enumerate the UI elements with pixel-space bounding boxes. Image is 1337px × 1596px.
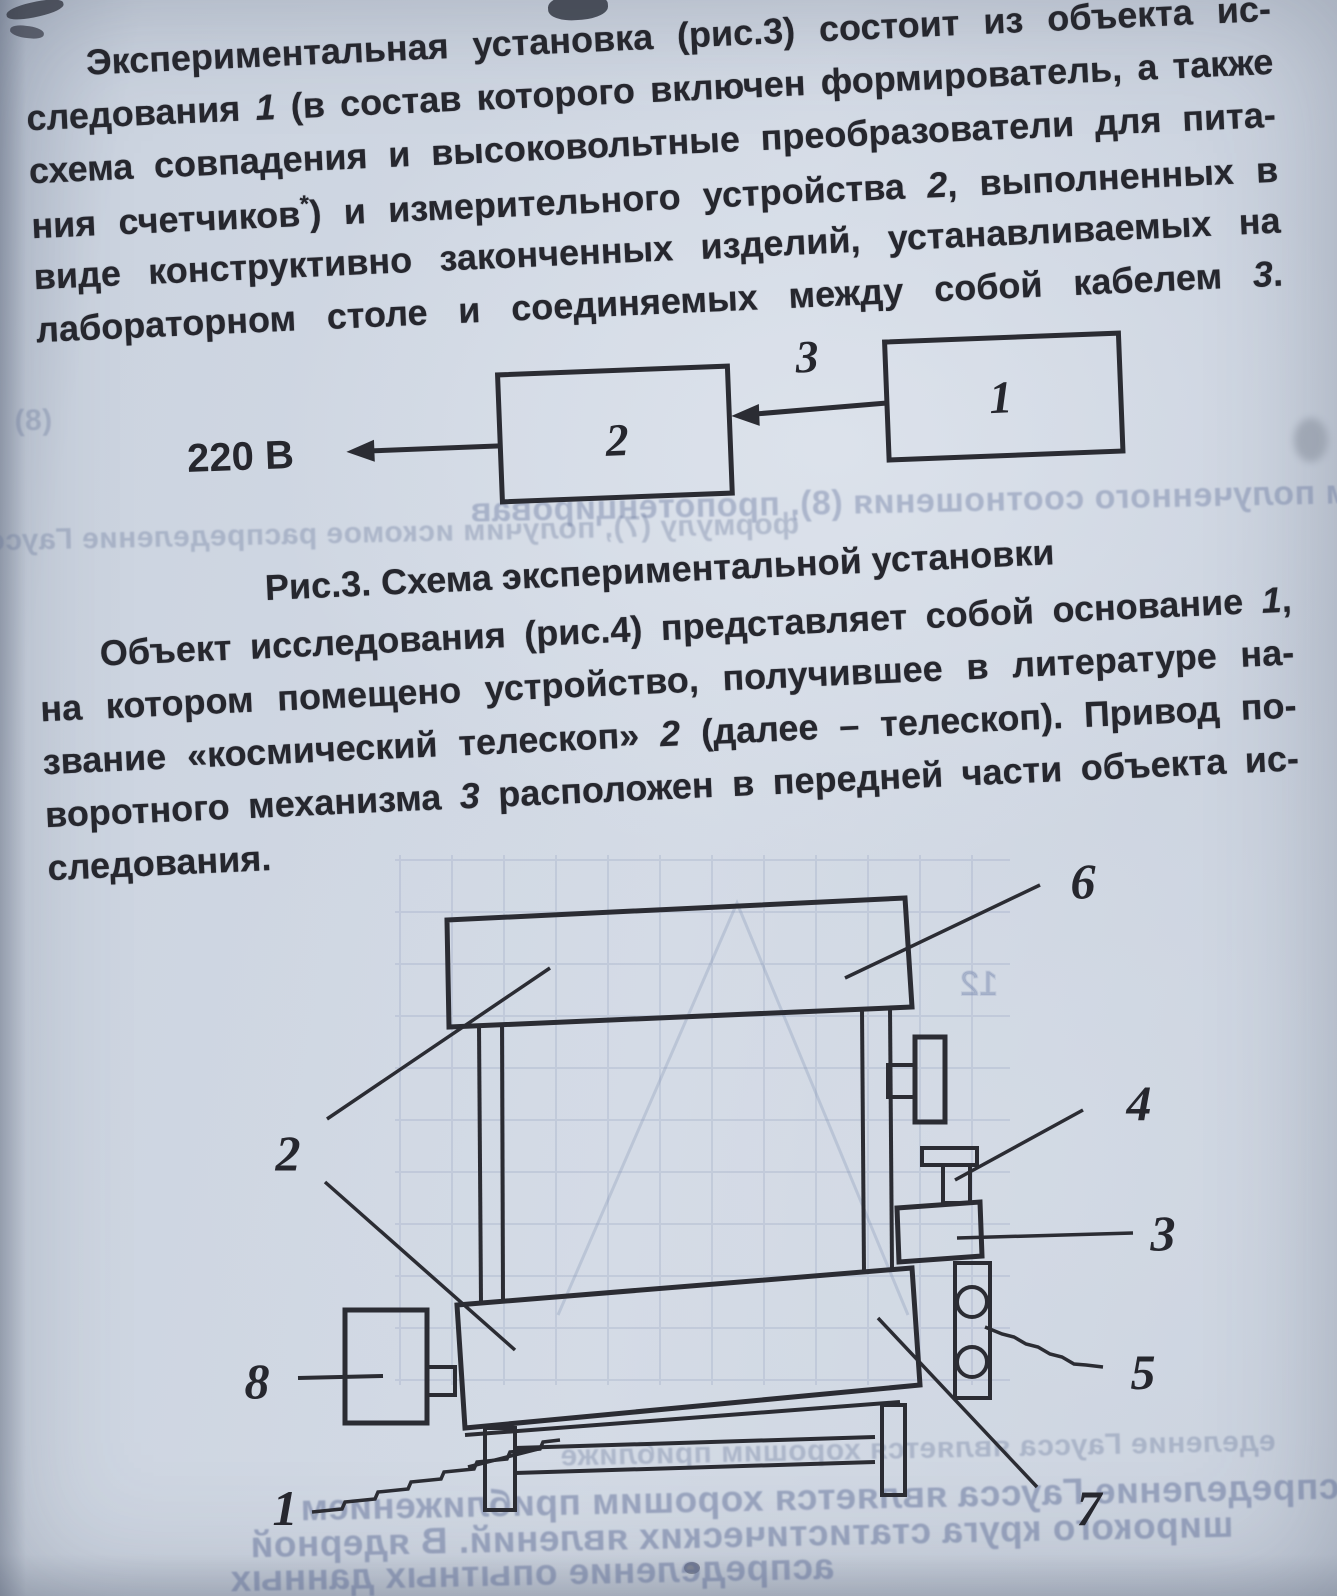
fig4-leader-8 [298,1376,383,1378]
bleed-digit: 12 [960,965,998,1003]
fig4-label-4: 4 [1126,1075,1152,1131]
fig4-drive-housing [345,1310,427,1423]
fig3-cable-number: 3 [794,331,820,383]
fig4-leader-7 [878,1318,1037,1487]
fig3-cable-arrowhead [731,404,760,427]
fig4-label-7: 7 [1077,1480,1104,1536]
scanned-page: (8) Тогда с учетом полученного соотношен… [0,0,1337,1596]
fig4-left-post [479,1024,503,1303]
fig4-telescope-plate [447,898,912,1027]
fig4-label-8: 8 [245,1353,270,1409]
fig4-left-leg [485,1428,515,1510]
fig4-right-leg [882,1405,905,1495]
item-number: 2 [659,712,681,754]
item-number: 1 [1261,579,1283,621]
item-number: 2 [926,164,948,206]
fig3-mains-line [370,446,500,451]
fig4-drive-block [897,1202,982,1262]
fig4-drawing: 12 [0,845,1337,1596]
fig4-base-shelf-bottom [515,1462,875,1473]
text-run: . [1272,253,1284,294]
fig4-leader-1-tick [468,1449,538,1467]
item-number: 1 [254,86,276,128]
fig3-block2-number: 2 [604,414,630,466]
fig3-block1-number: 1 [988,371,1013,423]
fig4-leader-5 [985,1327,1103,1367]
fig4-leader-2-upper [327,968,550,1119]
fig3-cable-line [753,403,887,414]
fig4-base-shelf-top [515,1437,875,1448]
fig4-label-1: 1 [273,1480,298,1536]
fig4-label-3: 3 [1150,1205,1176,1261]
item-number: 3 [1252,253,1274,295]
fig3-mains-arrowhead [346,440,375,463]
item-number: 3 [459,775,481,817]
text-run: , [1281,579,1293,620]
fig4-leader-1 [312,1440,560,1512]
text-run: ния счетчиков [30,193,301,246]
fig4-label-6: 6 [1071,853,1096,909]
fig4-leader-2-lower [325,1182,515,1350]
fig4-adjuster [922,1148,977,1203]
paragraph-1: Экспериментальная установка (рис.3) сост… [23,0,1284,362]
fig4-label-5: 5 [1131,1344,1156,1400]
fig4-label-2: 2 [275,1125,301,1181]
fig3-diagram: 220 В 2 1 3 [120,335,1260,625]
fig4-right-post [862,1008,892,1272]
fig3-mains-voltage-label: 220 В [186,433,294,481]
